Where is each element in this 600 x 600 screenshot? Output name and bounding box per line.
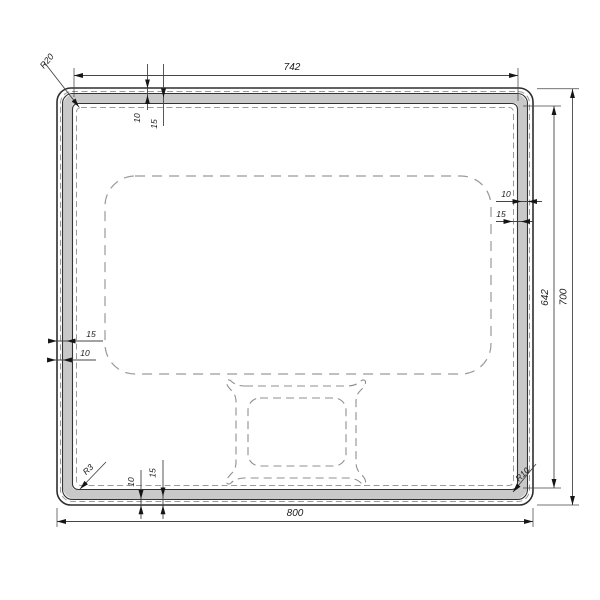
frame-outer-contour <box>57 88 533 505</box>
panel-frame <box>57 88 533 505</box>
dim-label-offset-15: 15 <box>149 119 159 129</box>
dim-label-offset-10: 10 <box>501 189 511 199</box>
dim-label-inner-width: 742 <box>284 62 301 73</box>
dim-label-offset-15: 15 <box>86 329 96 339</box>
dim-label-outer-height: 700 <box>559 288 570 305</box>
dim-label-inner-height: 642 <box>540 289 551 306</box>
dim-label-outer-width: 800 <box>287 508 304 519</box>
dim-label-offset-10: 10 <box>126 477 136 487</box>
technical-drawing-canvas: 742 800 700 642 10 15 10 <box>0 0 600 600</box>
panel-dimension-drawing: 742 800 700 642 10 15 10 <box>0 0 600 600</box>
dim-outer-width: 800 <box>57 508 533 527</box>
dim-label-offset-10: 10 <box>132 113 142 123</box>
dim-label-offset-15: 15 <box>148 468 158 478</box>
radius-label-r20: R20 <box>38 52 56 71</box>
dim-label-offset-15: 15 <box>496 209 506 219</box>
dim-label-offset-10: 10 <box>80 348 90 358</box>
